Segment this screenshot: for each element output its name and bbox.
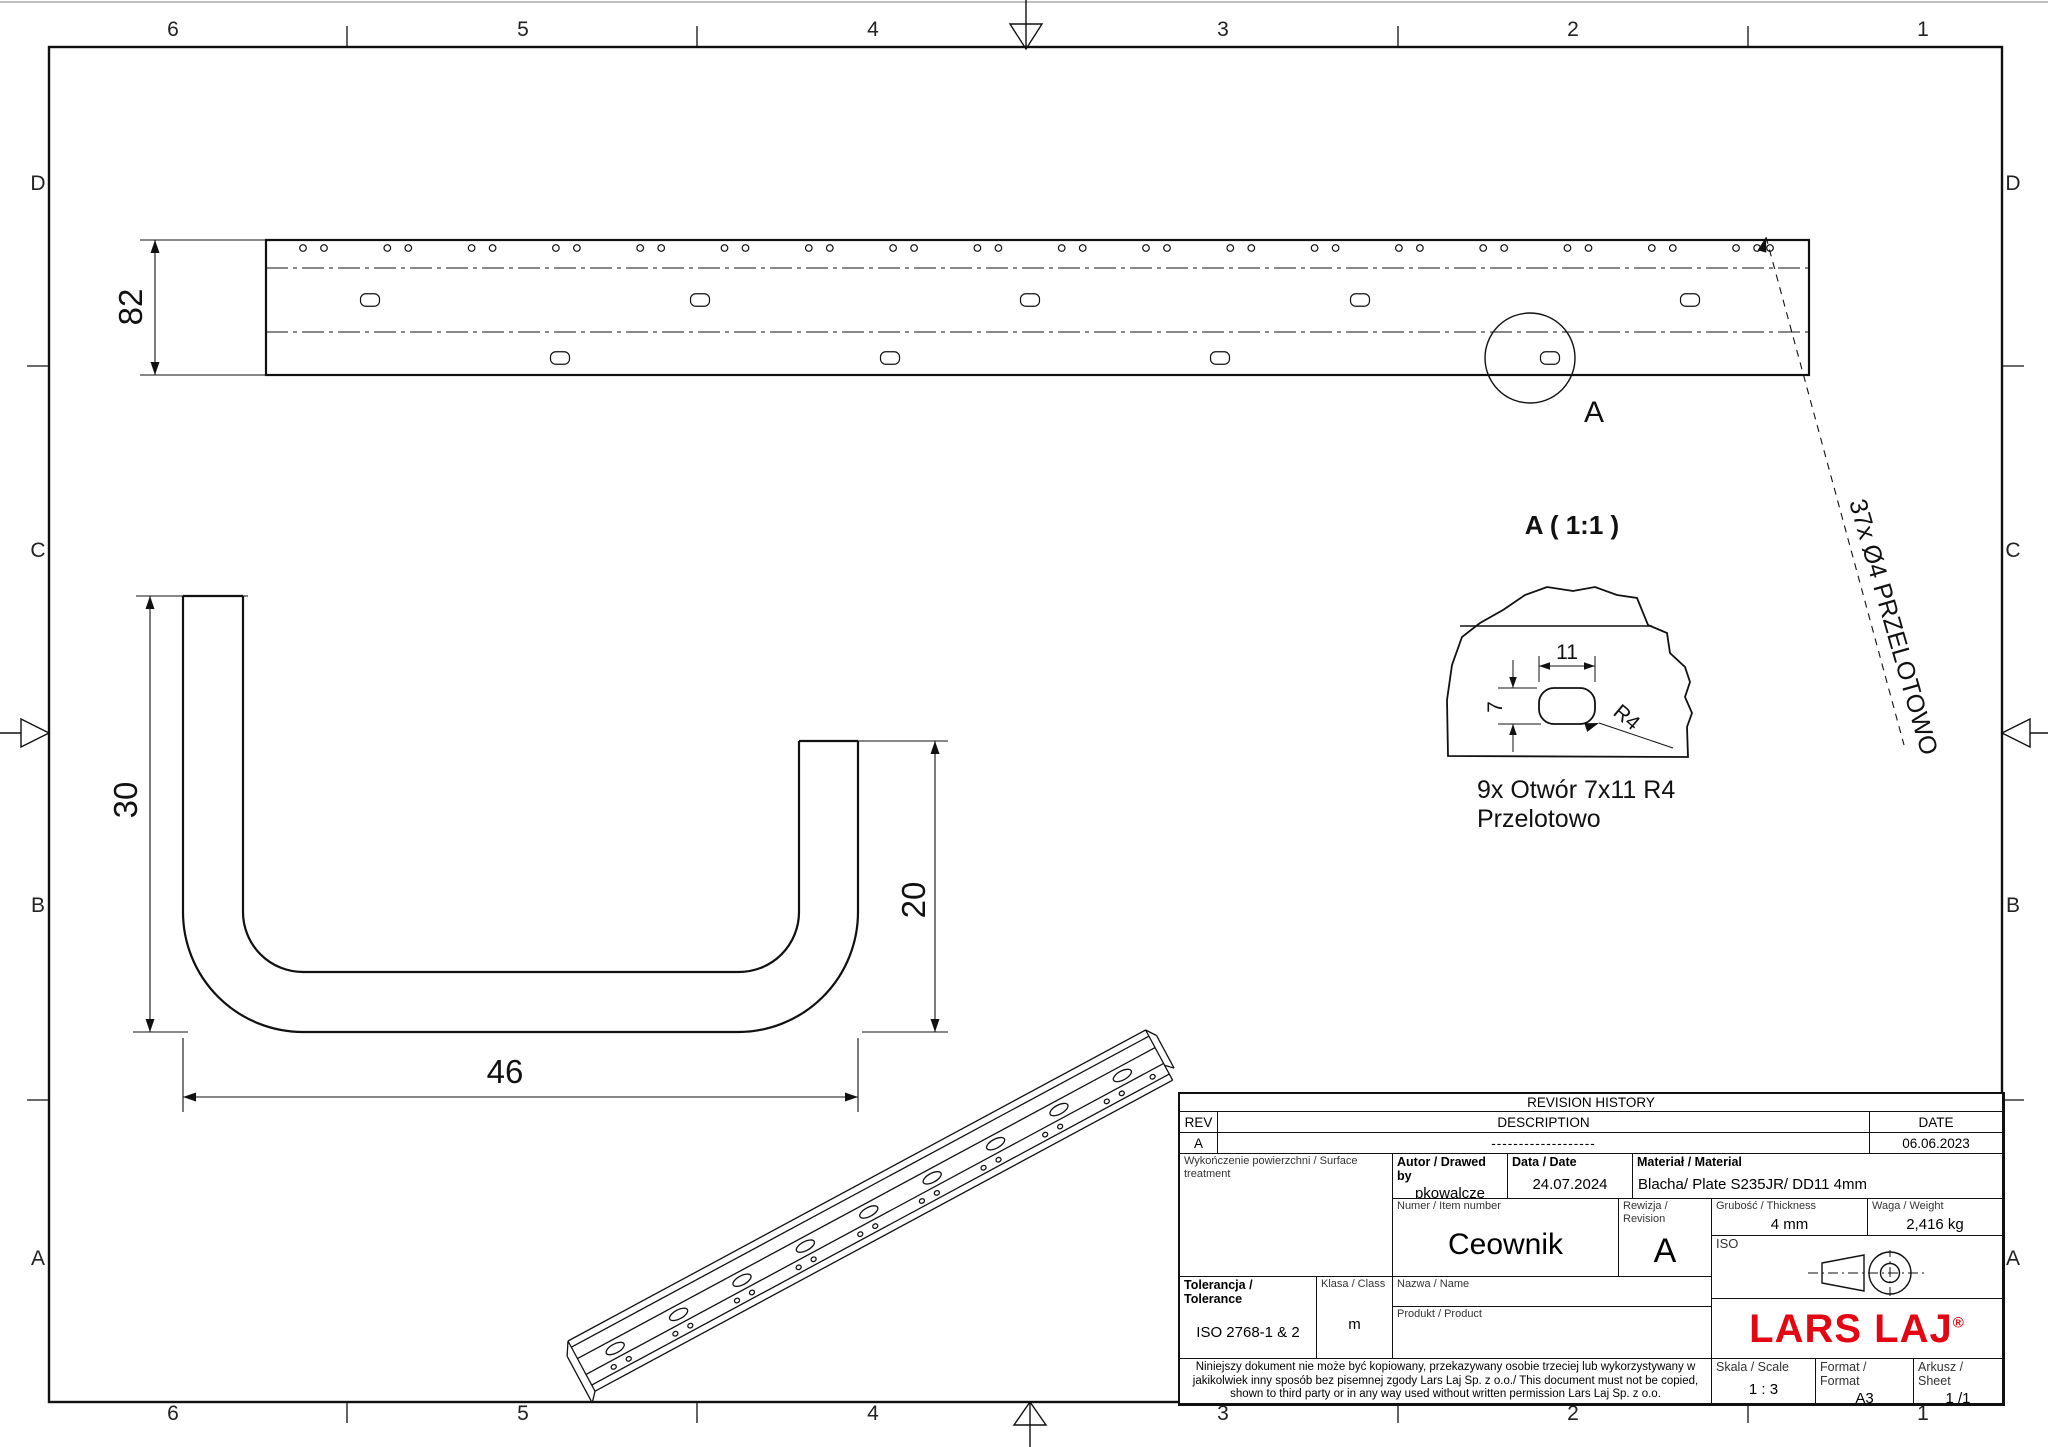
item-number-label: Numer / Item number bbox=[1393, 1199, 1618, 1214]
revision-row-rev: A bbox=[1180, 1133, 1218, 1154]
detail-marker-label: A bbox=[1584, 396, 1604, 429]
detail-a-view: A ( 1:1 ) 11 7 R4 9x O bbox=[1447, 510, 1692, 833]
thickness-cell: Grubość / Thickness 4 mm bbox=[1712, 1199, 1868, 1236]
flat-outline bbox=[266, 240, 1809, 375]
material-value: Blacha/ Plate S235JR/ DD11 4mm bbox=[1633, 1170, 2002, 1198]
author-cell: Autor / Drawed by pkowalcze bbox=[1393, 1154, 1508, 1199]
scale-value: 1 : 3 bbox=[1712, 1375, 1815, 1403]
weight-value: 2,416 kg bbox=[1868, 1214, 2002, 1235]
date-col-header: DATE bbox=[1870, 1112, 2003, 1133]
dim-7: 7 bbox=[1484, 701, 1507, 713]
svg-text:6: 6 bbox=[167, 1402, 179, 1425]
thickness-value: 4 mm bbox=[1712, 1214, 1867, 1235]
format-label: Format / Format bbox=[1816, 1359, 1913, 1390]
item-number-value: Ceownik bbox=[1393, 1214, 1618, 1276]
detail-circle bbox=[1485, 313, 1575, 403]
scale-cell: Skala / Scale 1 : 3 bbox=[1712, 1359, 1816, 1404]
title-block: REVISION HISTORY REV DESCRIPTION DATE A … bbox=[1178, 1092, 2005, 1406]
logo-cell: LARS LAJ® bbox=[1712, 1299, 2003, 1359]
disclaimer-line1: Niniejszy dokument nie może być kopiowan… bbox=[1180, 1361, 1711, 1375]
hole-note-line2: Przelotowo bbox=[1477, 805, 1601, 833]
format-value: A3 bbox=[1816, 1390, 1913, 1404]
description-col-header: DESCRIPTION bbox=[1218, 1112, 1870, 1133]
name-cell: Nazwa / Name bbox=[1393, 1277, 1712, 1307]
product-cell: Produkt / Product bbox=[1393, 1307, 1712, 1359]
revision-history-title: REVISION HISTORY bbox=[1180, 1094, 2003, 1112]
section-view: 30 20 46 bbox=[107, 596, 948, 1112]
class-label: Klasa / Class bbox=[1317, 1277, 1392, 1292]
round-holes bbox=[300, 245, 1774, 252]
svg-text:2: 2 bbox=[1567, 18, 1579, 41]
slot-holes bbox=[361, 294, 1700, 365]
svg-text:D: D bbox=[30, 172, 45, 195]
class-cell: Klasa / Class m bbox=[1317, 1277, 1393, 1359]
svg-text:B: B bbox=[2006, 894, 2020, 917]
svg-text:1: 1 bbox=[1917, 18, 1929, 41]
scale-label: Skala / Scale bbox=[1712, 1359, 1815, 1375]
leader-note: 37x Ø4 PRZELOTOWO bbox=[1843, 496, 1943, 758]
revision-label: Rewizja / Revision bbox=[1619, 1199, 1711, 1226]
name-label: Nazwa / Name bbox=[1393, 1277, 1711, 1292]
r4-arrow bbox=[1584, 719, 1600, 732]
surface-treatment-label: Wykończenie powierzchni / Surface treatm… bbox=[1180, 1154, 1392, 1181]
rev-col-header: REV bbox=[1180, 1112, 1218, 1133]
svg-text:5: 5 bbox=[517, 18, 529, 41]
leader-arrow bbox=[1758, 236, 1771, 253]
flat-pattern-view: 82 A 37x Ø4 PRZELOTOWO bbox=[112, 236, 1943, 758]
date-value: 24.07.2024 bbox=[1508, 1170, 1632, 1198]
dim-82: 82 bbox=[112, 289, 149, 326]
date-cell: Data / Date 24.07.2024 bbox=[1508, 1154, 1633, 1199]
author-value: pkowalcze bbox=[1393, 1185, 1507, 1199]
author-label: Autor / Drawed by bbox=[1393, 1154, 1507, 1185]
isometric-view bbox=[561, 1027, 1183, 1403]
disclaimer-line2: jakikolwiek inny sposób bez pisemnej zgo… bbox=[1180, 1375, 1711, 1389]
tolerance-label: Tolerancja / Tolerance bbox=[1180, 1277, 1316, 1308]
class-value: m bbox=[1317, 1292, 1392, 1358]
svg-text:3: 3 bbox=[1217, 18, 1229, 41]
revision-value: A bbox=[1619, 1226, 1711, 1276]
tolerance-value: ISO 2768-1 & 2 bbox=[1180, 1308, 1316, 1358]
weight-cell: Waga / Weight 2,416 kg bbox=[1868, 1199, 2003, 1236]
date-label: Data / Date bbox=[1508, 1154, 1632, 1170]
revision-cell: Rewizja / Revision A bbox=[1619, 1199, 1712, 1277]
detail-break-outline bbox=[1447, 587, 1692, 757]
disclaimer-cell: Niniejszy dokument nie może być kopiowan… bbox=[1180, 1359, 1712, 1404]
channel-outline bbox=[183, 596, 858, 1032]
dim-7-arrows bbox=[1509, 677, 1517, 735]
svg-text:A: A bbox=[31, 1247, 45, 1270]
svg-text:C: C bbox=[2005, 539, 2020, 562]
dim-82-lines bbox=[140, 240, 266, 375]
revision-row-description: ------------------- bbox=[1218, 1133, 1870, 1154]
drawing-sheet: 665544332211DDCCBBAA 82 A 37x Ø4 PRZELOT… bbox=[0, 0, 2048, 1447]
thickness-label: Grubość / Thickness bbox=[1712, 1199, 1867, 1214]
disclaimer-line3: shown to third party or in any way used … bbox=[1180, 1388, 1711, 1402]
svg-text:D: D bbox=[2005, 172, 2020, 195]
detail-title: A ( 1:1 ) bbox=[1525, 510, 1619, 540]
weight-label: Waga / Weight bbox=[1868, 1199, 2002, 1214]
sheet-label: Arkusz / Sheet bbox=[1914, 1359, 2002, 1390]
hole-note-line1: 9x Otwór 7x11 R4 bbox=[1477, 776, 1675, 804]
material-cell: Materiał / Material Blacha/ Plate S235JR… bbox=[1633, 1154, 2003, 1199]
svg-text:6: 6 bbox=[167, 18, 179, 41]
dim-11: 11 bbox=[1556, 641, 1578, 664]
sheet-value: 1 /1 bbox=[1914, 1390, 2002, 1404]
dim-30: 30 bbox=[107, 782, 144, 819]
product-label: Produkt / Product bbox=[1393, 1307, 1711, 1322]
dim-30-lines bbox=[133, 596, 248, 1032]
dim-20: 20 bbox=[895, 882, 932, 919]
dim-46: 46 bbox=[487, 1053, 524, 1090]
svg-text:4: 4 bbox=[867, 18, 879, 41]
detail-slot bbox=[1539, 688, 1595, 724]
svg-text:A: A bbox=[2006, 1247, 2020, 1270]
first-angle-projection-icon bbox=[1712, 1250, 2001, 1296]
format-cell: Format / Format A3 bbox=[1816, 1359, 1914, 1404]
surface-treatment-cell: Wykończenie powierzchni / Surface treatm… bbox=[1180, 1154, 1393, 1277]
svg-text:5: 5 bbox=[517, 1402, 529, 1425]
projection-cell: ISO bbox=[1712, 1236, 2003, 1299]
r4-label: R4 bbox=[1609, 700, 1645, 735]
lars-laj-logo: LARS LAJ® bbox=[1749, 1309, 1965, 1349]
svg-text:4: 4 bbox=[867, 1402, 879, 1425]
item-number-cell: Numer / Item number Ceownik bbox=[1393, 1199, 1619, 1277]
leader-line bbox=[1766, 237, 1904, 745]
material-label: Materiał / Material bbox=[1633, 1154, 2002, 1170]
svg-text:B: B bbox=[31, 894, 45, 917]
tolerance-cell: Tolerancja / Tolerance ISO 2768-1 & 2 bbox=[1180, 1277, 1317, 1359]
sheet-cell: Arkusz / Sheet 1 /1 bbox=[1914, 1359, 2003, 1404]
svg-text:C: C bbox=[30, 539, 45, 562]
revision-row-date: 06.06.2023 bbox=[1870, 1133, 2003, 1154]
